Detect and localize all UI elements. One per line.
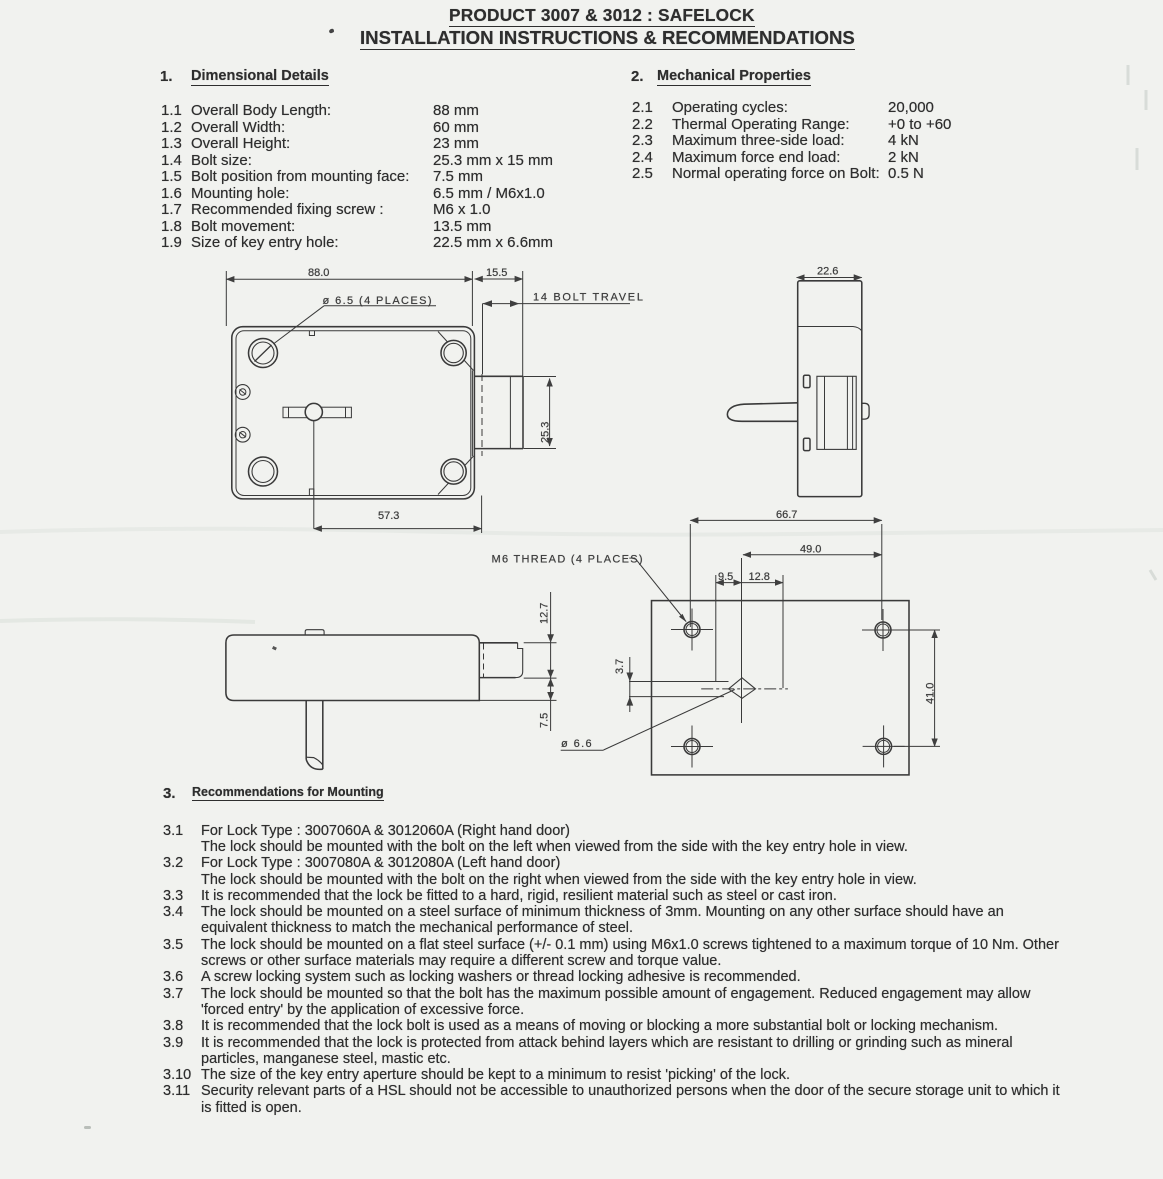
svg-text:9.5: 9.5 [718, 571, 733, 583]
svg-text:ø 6.5 (4 PLACES): ø 6.5 (4 PLACES) [323, 295, 433, 307]
svg-text:57.3: 57.3 [378, 510, 399, 522]
svg-text:7.5: 7.5 [539, 713, 551, 728]
svg-text:M6 THREAD (4 PLACES): M6 THREAD (4 PLACES) [492, 554, 644, 566]
svg-text:14 BOLT TRAVEL: 14 BOLT TRAVEL [533, 292, 645, 304]
svg-text:25.3: 25.3 [540, 422, 552, 443]
svg-text:12.8: 12.8 [749, 571, 770, 583]
svg-text:12.7: 12.7 [539, 603, 551, 624]
svg-text:49.0: 49.0 [800, 543, 821, 555]
svg-text:15.5: 15.5 [486, 267, 507, 279]
svg-text:ø 6.6: ø 6.6 [561, 738, 593, 750]
svg-text:3.7: 3.7 [614, 659, 626, 674]
svg-text:88.0: 88.0 [308, 267, 329, 279]
svg-text:22.6: 22.6 [817, 266, 838, 278]
svg-text:41.0: 41.0 [925, 683, 937, 704]
svg-text:66.7: 66.7 [776, 509, 797, 521]
